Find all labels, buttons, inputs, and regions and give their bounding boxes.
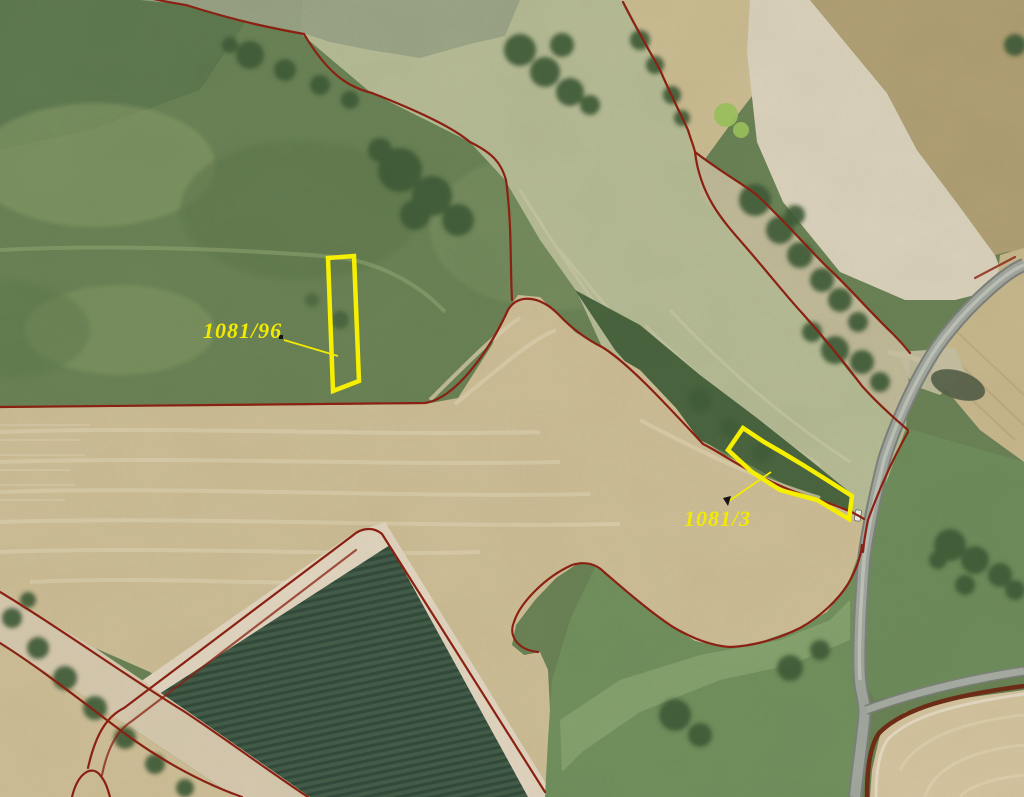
parcel-label-1081-96: 1081/96 [203, 318, 282, 343]
aerial-imagery: 1081/96 1081/3 [0, 0, 1024, 797]
texture-overlay-fine [0, 0, 1024, 797]
parcel-label-1081-3: 1081/3 [684, 506, 751, 531]
aerial-map-canvas[interactable]: 1081/96 1081/3 [0, 0, 1024, 797]
